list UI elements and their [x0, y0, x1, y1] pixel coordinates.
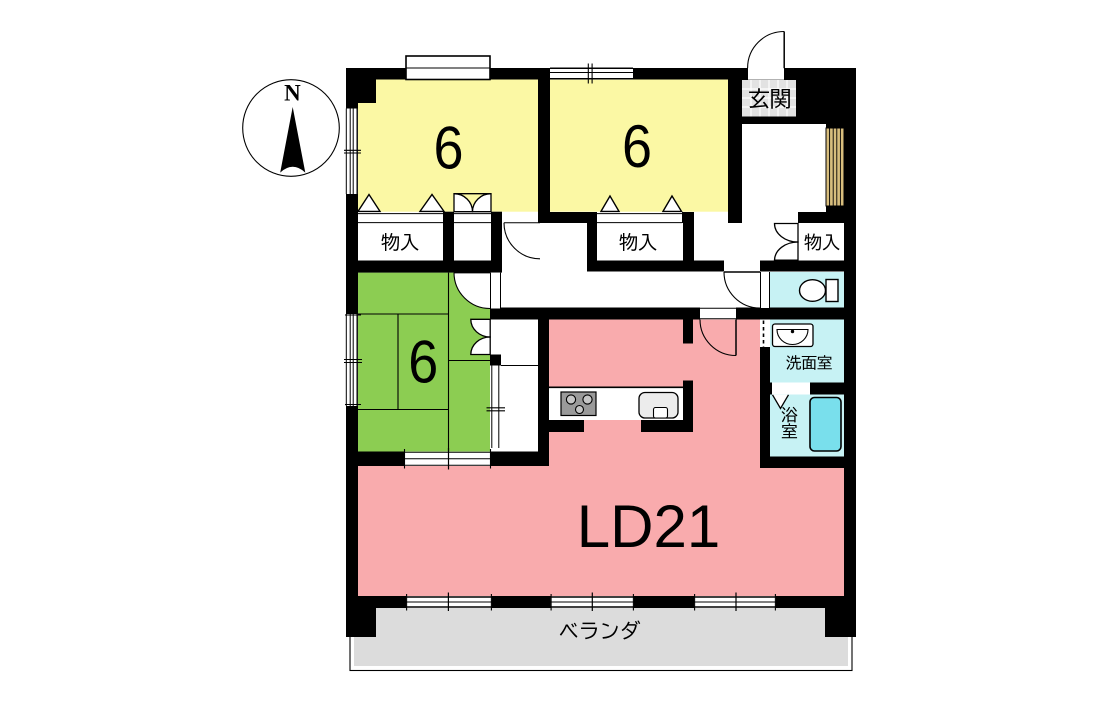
svg-text:6: 6	[434, 115, 464, 182]
svg-text:6: 6	[408, 329, 438, 396]
svg-text:N: N	[284, 81, 301, 106]
svg-text:LD21: LD21	[577, 493, 720, 560]
svg-text:6: 6	[622, 113, 652, 180]
